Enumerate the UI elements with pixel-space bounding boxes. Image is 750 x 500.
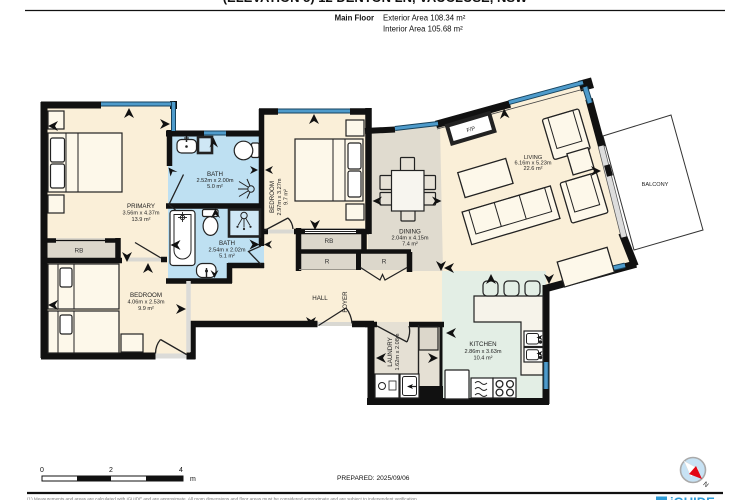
svg-text:4: 4 [179,467,183,474]
svg-text:FOYER: FOYER [342,291,349,313]
svg-text:5.0 m²: 5.0 m² [207,184,223,190]
svg-text:22.6 m²: 22.6 m² [524,166,543,172]
svg-text:HALL: HALL [312,295,328,302]
svg-text:2: 2 [109,467,113,474]
svg-text:(1) Measurements and areas are: (1) Measurements and areas are calculate… [27,497,418,500]
svg-text:3.56m x 4.37m: 3.56m x 4.37m [123,211,160,217]
svg-text:10.4 m²: 10.4 m² [474,356,493,362]
svg-text:BALCONY: BALCONY [642,182,669,188]
svg-text:BATH: BATH [207,171,223,178]
svg-text:Main Floor: Main Floor [335,14,374,23]
svg-text:RB: RB [75,248,84,255]
svg-text:0: 0 [40,467,44,474]
svg-text:9.9 m²: 9.9 m² [138,306,154,312]
svg-text:RB: RB [325,238,334,245]
svg-text:BEDROOM: BEDROOM [130,292,162,299]
svg-text:BEDROOM: BEDROOM [269,181,276,213]
svg-text:Interior Area 105.68 m²: Interior Area 105.68 m² [383,25,463,34]
svg-text:DINING: DINING [399,229,421,236]
svg-text:LAUNDRY: LAUNDRY [387,337,394,366]
svg-text:13.9 m²: 13.9 m² [132,217,151,223]
svg-text:Exterior Area 108.34 m²: Exterior Area 108.34 m² [383,14,466,23]
svg-text:iGUIDE: iGUIDE [670,495,715,500]
svg-text:2.97m x 3.27m: 2.97m x 3.27m [277,178,283,215]
svg-text:1.62m x 2.08m: 1.62m x 2.08m [395,333,401,370]
svg-text:2.86m x 3.63m: 2.86m x 3.63m [465,349,502,355]
svg-text:5.1 m²: 5.1 m² [219,254,235,260]
svg-text:PRIMARY: PRIMARY [127,203,155,210]
svg-text:7.4 m²: 7.4 m² [402,242,418,248]
svg-text:R: R [325,259,330,266]
svg-text:(ELEVATION 5) 12 DENTON LN, VA: (ELEVATION 5) 12 DENTON LN, VAUCLUSE, NS… [223,0,528,5]
svg-text:m: m [190,476,196,483]
svg-text:PREPARED: 2025/09/06: PREPARED: 2025/09/06 [337,475,410,482]
svg-text:4.06m x 2.53m: 4.06m x 2.53m [128,300,165,306]
svg-text:R: R [382,259,387,266]
svg-text:9.7 m²: 9.7 m² [284,189,290,205]
svg-text:BATH: BATH [219,240,235,247]
svg-text:KITCHEN: KITCHEN [469,341,496,348]
